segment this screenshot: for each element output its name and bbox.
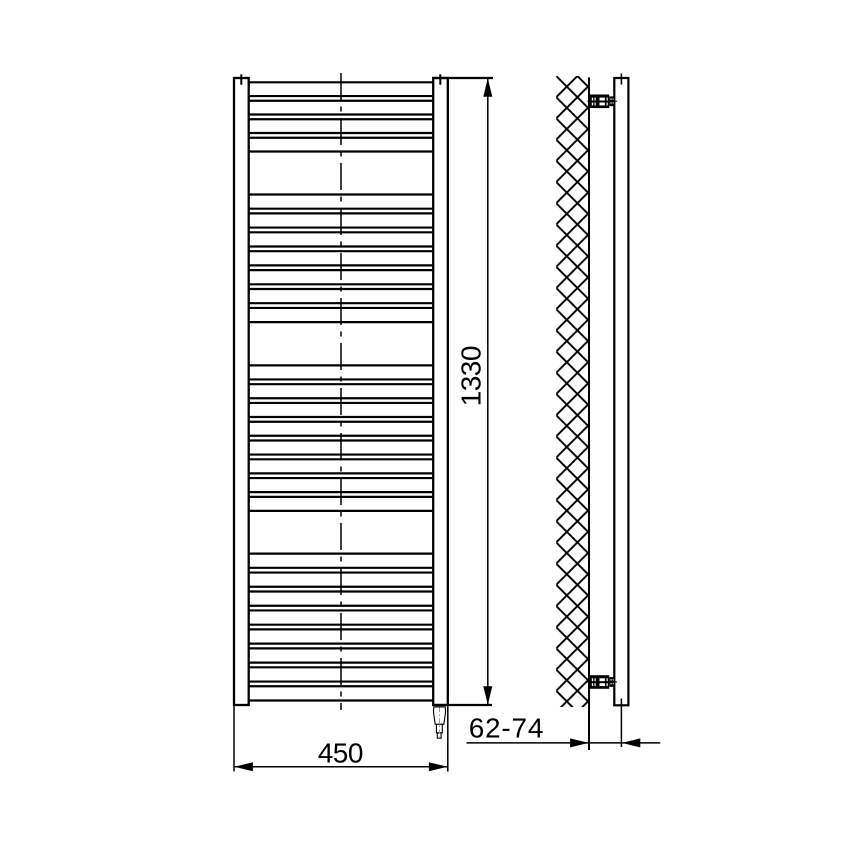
svg-text:62-74: 62-74 bbox=[469, 712, 545, 743]
svg-text:1330: 1330 bbox=[456, 346, 487, 406]
svg-text:450: 450 bbox=[318, 737, 363, 768]
